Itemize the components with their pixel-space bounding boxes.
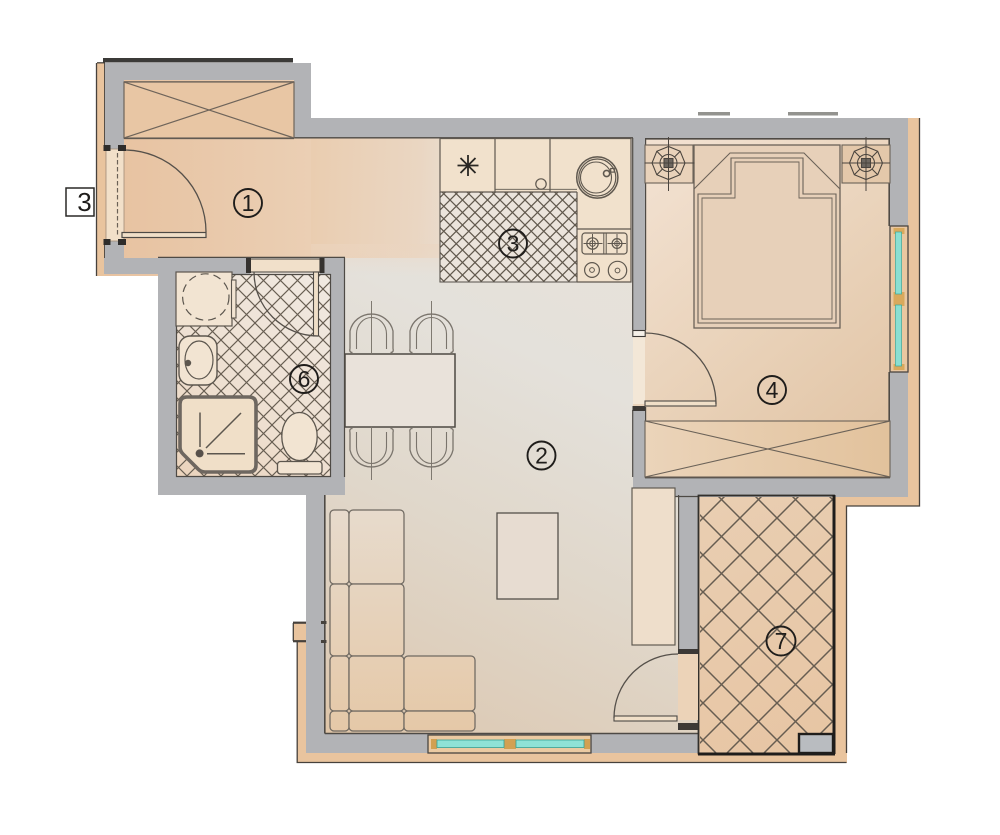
svg-text:6: 6 xyxy=(298,366,311,392)
svg-text:2: 2 xyxy=(535,443,548,469)
svg-text:7: 7 xyxy=(775,628,788,654)
svg-text:1: 1 xyxy=(242,190,255,216)
svg-text:3: 3 xyxy=(507,231,520,257)
svg-text:3: 3 xyxy=(77,187,91,217)
svg-text:4: 4 xyxy=(766,377,779,403)
